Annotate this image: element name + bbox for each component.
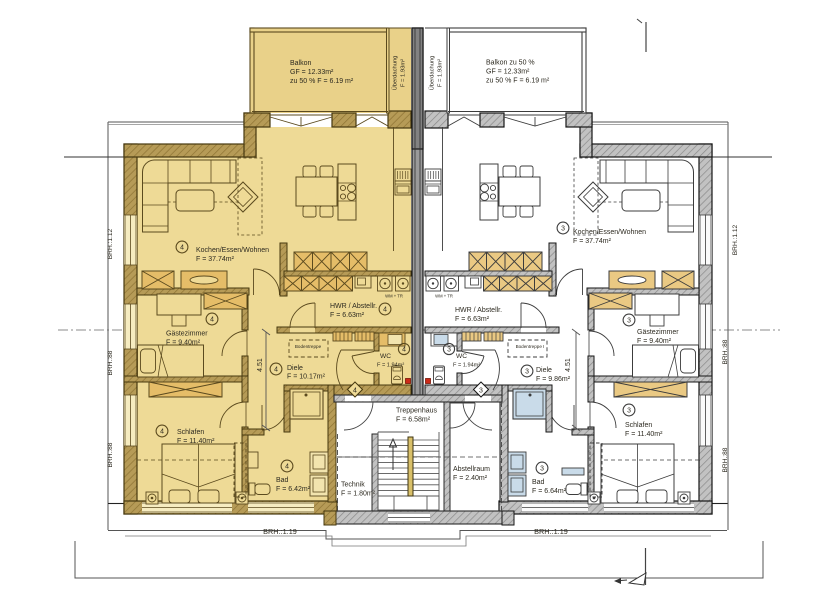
svg-text:BRH.:88: BRH.:88 — [722, 447, 729, 472]
svg-text:3: 3 — [479, 387, 483, 394]
svg-text:Bad: Bad — [532, 479, 545, 486]
svg-text:zu 50 % F = 6.19 m²: zu 50 % F = 6.19 m² — [290, 78, 354, 85]
svg-text:GF = 12.33m²: GF = 12.33m² — [486, 69, 530, 76]
svg-text:F = 37.74m²: F = 37.74m² — [573, 238, 612, 245]
svg-text:3: 3 — [627, 408, 631, 415]
svg-text:Bodentreppe: Bodentreppe — [295, 344, 322, 349]
svg-text:Kochen/Essen/Wohnen: Kochen/Essen/Wohnen — [573, 229, 646, 236]
svg-text:BRH.:88: BRH.:88 — [107, 442, 114, 467]
svg-text:BRH.:88: BRH.:88 — [107, 350, 114, 375]
svg-text:zu 50 % F = 6.19 m²: zu 50 % F = 6.19 m² — [486, 78, 550, 85]
svg-text:F = 6.42m²: F = 6.42m² — [276, 486, 311, 493]
svg-text:3: 3 — [627, 318, 631, 325]
svg-text:Diele: Diele — [287, 365, 303, 372]
svg-text:F = 9.40m²: F = 9.40m² — [166, 340, 201, 347]
svg-text:GF = 12.33m²: GF = 12.33m² — [290, 69, 334, 76]
svg-text:BRH.:88: BRH.:88 — [722, 339, 729, 364]
svg-text:F = 9.40m²: F = 9.40m² — [637, 338, 672, 345]
svg-text:F = 1.94m²: F = 1.94m² — [377, 363, 404, 369]
svg-text:Balkon: Balkon — [290, 60, 312, 67]
svg-text:F = 6.63m²: F = 6.63m² — [455, 316, 490, 323]
svg-text:F = 9.86m²: F = 9.86m² — [536, 376, 571, 383]
svg-text:Technik: Technik — [341, 482, 365, 489]
svg-text:Überdachung: Überdachung — [429, 56, 436, 91]
svg-text:Schlafen: Schlafen — [625, 422, 652, 429]
svg-text:4: 4 — [383, 307, 387, 314]
svg-text:F = 6.63m²: F = 6.63m² — [330, 312, 365, 319]
svg-text:3: 3 — [525, 369, 529, 376]
svg-text:Abstellraum: Abstellraum — [453, 466, 490, 473]
svg-text:4: 4 — [353, 387, 357, 394]
svg-text:3: 3 — [447, 347, 451, 354]
svg-text:F = 37.74m²: F = 37.74m² — [196, 256, 235, 263]
svg-text:F = 1.93m²: F = 1.93m² — [438, 59, 444, 87]
svg-text:Schlafen: Schlafen — [177, 429, 204, 436]
svg-text:Treppenhaus: Treppenhaus — [396, 408, 437, 415]
svg-text:WM + TR: WM + TR — [385, 294, 403, 299]
svg-text:Diele: Diele — [536, 367, 552, 374]
svg-text:F = 10.17m²: F = 10.17m² — [287, 374, 326, 381]
svg-text:WM + TR: WM + TR — [435, 294, 453, 299]
svg-text:HWR / Abstellr.: HWR / Abstellr. — [455, 307, 502, 314]
svg-text:BRH.:1.19: BRH.:1.19 — [263, 527, 297, 536]
svg-text:F = 11.40m²: F = 11.40m² — [177, 438, 215, 445]
svg-text:4: 4 — [402, 347, 406, 354]
svg-text:3: 3 — [561, 226, 565, 233]
svg-text:Balkon zu 50 %: Balkon zu 50 % — [486, 60, 535, 67]
svg-text:4.51: 4.51 — [257, 358, 264, 372]
svg-text:BRH.:1.12: BRH.:1.12 — [732, 224, 739, 255]
svg-text:WC: WC — [380, 353, 391, 360]
svg-text:F = 6.64m²: F = 6.64m² — [532, 488, 567, 495]
svg-text:F = 11.40m²: F = 11.40m² — [625, 431, 663, 438]
svg-text:4: 4 — [285, 464, 289, 471]
svg-text:F = 6.58m²: F = 6.58m² — [396, 417, 431, 424]
svg-text:Bodentreppe I: Bodentreppe I — [516, 344, 545, 349]
svg-text:3: 3 — [540, 466, 544, 473]
svg-text:Überdachung: Überdachung — [392, 56, 399, 91]
svg-text:BRH.:1.12: BRH.:1.12 — [107, 228, 114, 259]
svg-text:WC: WC — [456, 353, 467, 360]
svg-text:BRH.:1.19: BRH.:1.19 — [534, 527, 568, 536]
svg-text:HWR / Abstellr.: HWR / Abstellr. — [330, 303, 377, 310]
svg-text:4: 4 — [210, 317, 214, 324]
svg-text:F = 1.94m²: F = 1.94m² — [453, 363, 480, 369]
svg-text:4: 4 — [274, 367, 278, 374]
svg-text:F = 1.80m²: F = 1.80m² — [341, 491, 376, 498]
svg-text:4: 4 — [160, 429, 164, 436]
svg-text:Gästezimmer: Gästezimmer — [637, 329, 679, 336]
svg-text:F = 2.40m²: F = 2.40m² — [453, 475, 488, 482]
svg-text:F = 1.93m²: F = 1.93m² — [401, 59, 407, 87]
svg-text:Kochen/Essen/Wohnen: Kochen/Essen/Wohnen — [196, 247, 269, 254]
svg-text:4: 4 — [180, 245, 184, 252]
svg-text:Bad: Bad — [276, 477, 289, 484]
svg-text:Gästezimmer: Gästezimmer — [166, 331, 208, 338]
svg-text:4.51: 4.51 — [565, 358, 572, 372]
